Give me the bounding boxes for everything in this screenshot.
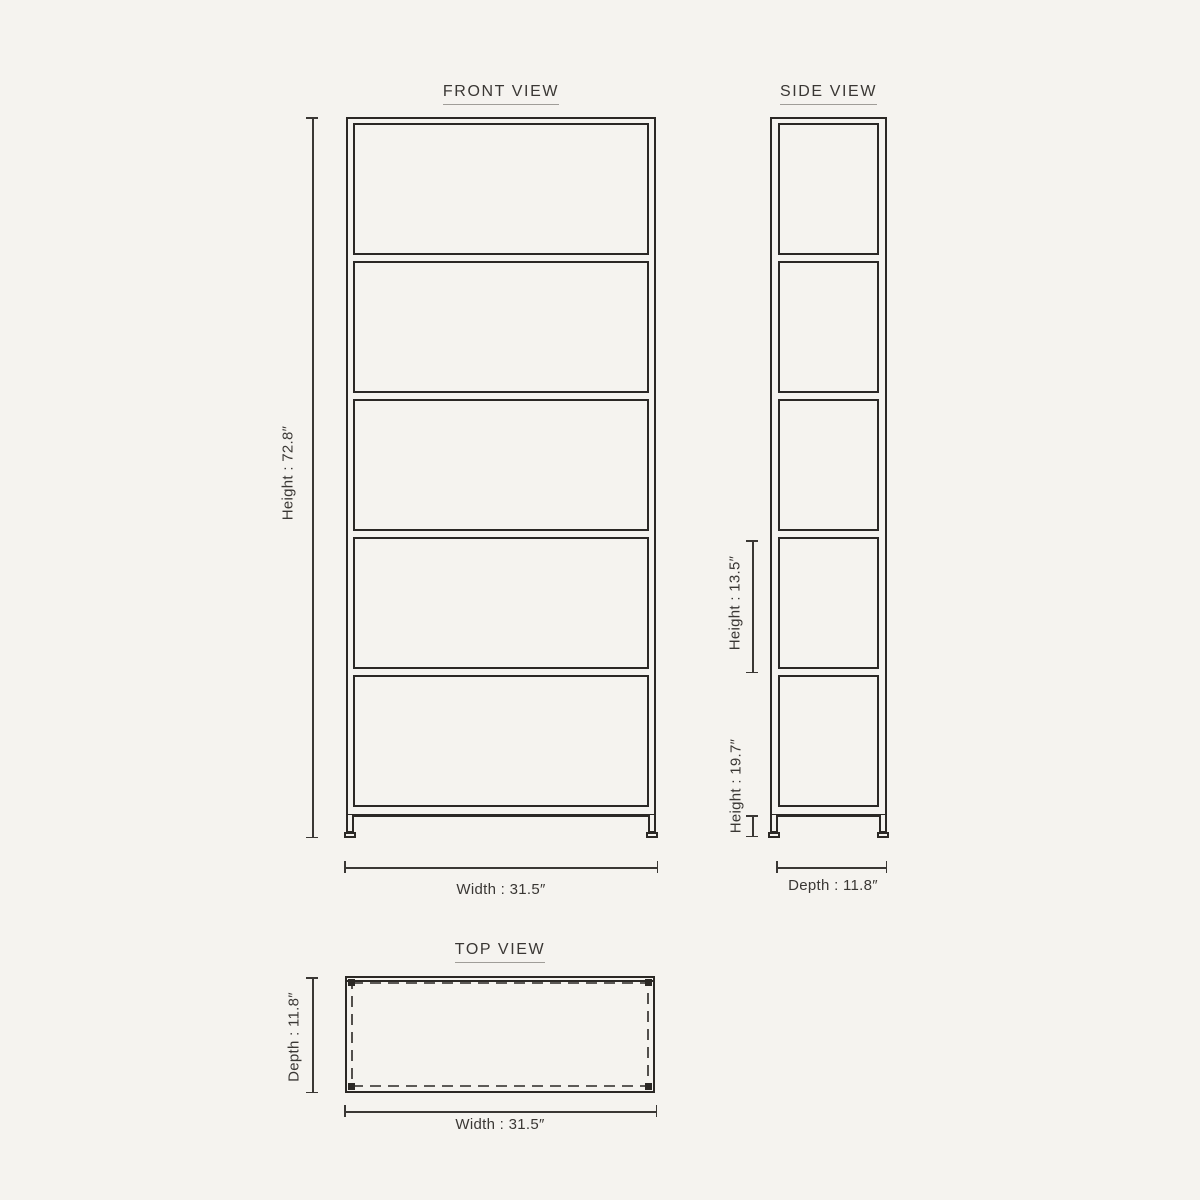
shelf-panel [778, 675, 879, 807]
dim-tick [776, 861, 778, 873]
dim-tick [746, 836, 758, 838]
shelf-panel [778, 399, 879, 531]
dim-line [312, 977, 314, 1093]
shelf-panel [353, 123, 649, 255]
dim-line [776, 867, 887, 869]
dim-line [752, 540, 754, 673]
front-view-title: FRONT VIEW [346, 83, 656, 105]
top-view-leg-post [348, 1083, 355, 1090]
top-view-leg-post [645, 1083, 652, 1090]
dim-line [344, 1111, 657, 1113]
top-view-shelf-outline [351, 982, 649, 1087]
side-depth-label: Depth : 11.8″ [773, 877, 893, 894]
top-view-title: TOP VIEW [345, 941, 655, 963]
top-width-label: Width : 31.5″ [350, 1116, 650, 1133]
front-height-label: Height : 72.8″ [280, 426, 297, 521]
side-view-title-text: SIDE VIEW [780, 83, 877, 105]
side-base-height-label: Height : 19.7″ [728, 739, 745, 834]
blueprint-canvas: FRONT VIEW Height : 72.8″ Width : 31.5″ … [0, 0, 1200, 1200]
front-left-foot [344, 832, 356, 838]
side-left-leg [770, 815, 778, 833]
front-view-title-text: FRONT VIEW [443, 83, 559, 105]
front-width-label: Width : 31.5″ [351, 881, 651, 898]
front-view-frame [346, 117, 656, 817]
dim-tick [344, 1105, 346, 1117]
dim-tick [746, 672, 758, 674]
shelf-panel [353, 399, 649, 531]
top-depth-label: Depth : 11.8″ [286, 992, 303, 1082]
side-shelf-height-label: Height : 13.5″ [727, 556, 744, 651]
dim-line [752, 815, 754, 837]
shelf-panel [353, 675, 649, 807]
top-view-title-text: TOP VIEW [455, 941, 545, 963]
top-view-frame [345, 976, 655, 1093]
side-view-title: SIDE VIEW [770, 83, 887, 105]
dim-tick [656, 1105, 658, 1117]
side-view-frame [770, 117, 887, 817]
dim-tick [344, 861, 346, 873]
shelf-panel [353, 537, 649, 669]
top-view-leg-post [645, 979, 652, 986]
side-left-foot [768, 832, 780, 838]
dim-tick [746, 815, 758, 817]
dim-tick [306, 977, 318, 979]
dim-tick [657, 861, 659, 873]
dim-line [312, 117, 314, 838]
top-view-leg-post [348, 979, 355, 986]
dim-tick [306, 1092, 318, 1094]
dim-tick [746, 540, 758, 542]
side-right-foot [877, 832, 889, 838]
dim-tick [886, 861, 888, 873]
front-right-leg [648, 815, 656, 833]
dim-tick [306, 837, 318, 839]
shelf-panel [778, 537, 879, 669]
front-right-foot [646, 832, 658, 838]
dim-line [344, 867, 658, 869]
front-left-leg [346, 815, 354, 833]
shelf-panel [778, 261, 879, 393]
shelf-panel [353, 261, 649, 393]
side-right-leg [879, 815, 887, 833]
shelf-panel [778, 123, 879, 255]
dim-tick [306, 117, 318, 119]
